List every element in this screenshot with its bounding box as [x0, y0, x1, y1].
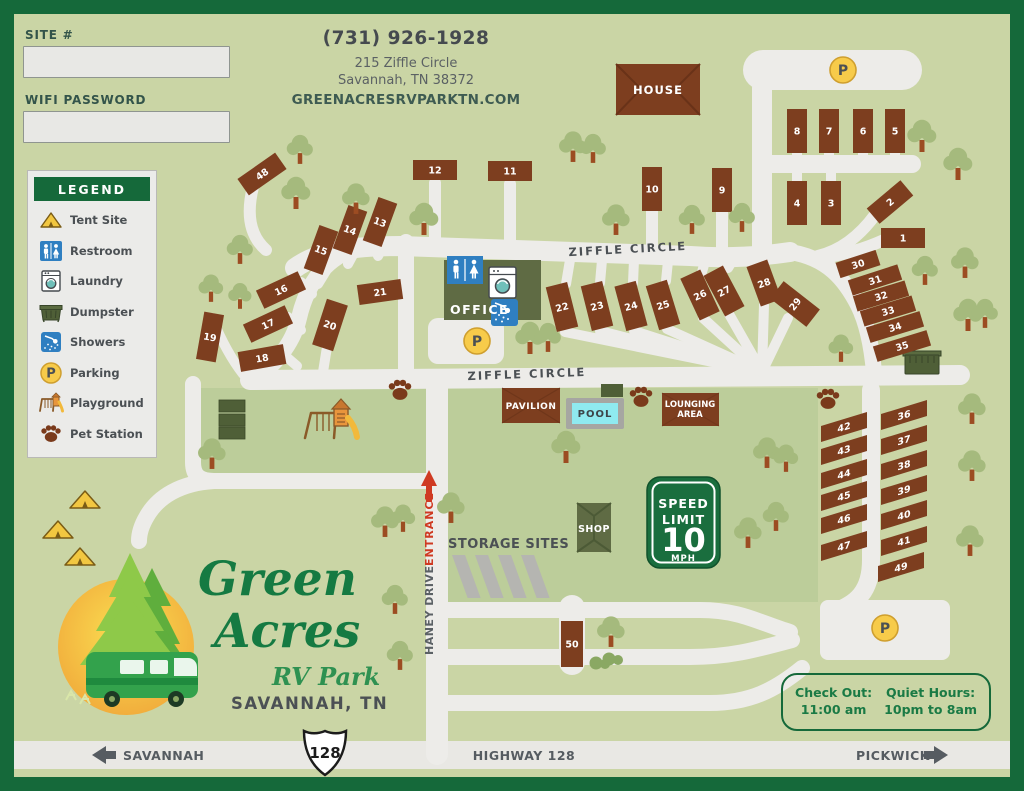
pavilion-label: PAVILION — [506, 402, 557, 412]
logo-location: SAVANNAH, TN — [231, 694, 388, 713]
checkout-info: Check Out: 11:00 am — [795, 685, 872, 719]
wifi-password-input[interactable] — [23, 111, 230, 143]
speed-unit: MPH — [671, 554, 696, 564]
site-5: 5 — [885, 109, 905, 153]
shop: SHOP — [577, 503, 611, 552]
site-11: 11 — [488, 161, 532, 181]
site-10: 10 — [642, 167, 662, 211]
highway-left-city: SAVANNAH — [123, 748, 204, 763]
office-label: OFFICE — [450, 302, 509, 317]
legend-item-showers: Showers — [28, 327, 156, 358]
playground-icon — [37, 391, 64, 415]
house: HOUSE — [616, 64, 700, 115]
svg-text:3: 3 — [828, 199, 835, 210]
legend-panel: LEGEND Tent Site Restroom Laundry Dumpst… — [27, 170, 157, 458]
address-line-1: 215 Ziffle Circle — [276, 56, 536, 73]
address-line-2: Savannah, TN 38372 — [276, 73, 536, 90]
svg-text:18: 18 — [255, 352, 270, 365]
svg-text:6: 6 — [860, 127, 867, 138]
site-50: 50 — [561, 621, 583, 667]
restroom-icon — [447, 256, 483, 284]
legend-item-restroom: Restroom — [28, 236, 156, 267]
speed-limit-sign: SPEED LIMIT 10 MPH — [647, 477, 720, 568]
legend-title: LEGEND — [34, 177, 150, 201]
legend-item-parking: P Parking — [28, 358, 156, 389]
site-number-input[interactable] — [23, 46, 230, 78]
pavilion: PAVILION — [502, 388, 560, 423]
svg-text:10: 10 — [645, 185, 659, 196]
lounging-label-1: LOUNGING — [665, 400, 716, 410]
entrance-label: ENTRANCE — [423, 492, 436, 566]
quiet-hours-value: 10pm to 8am — [884, 702, 977, 719]
legend-item-laundry: Laundry — [28, 266, 156, 297]
dumpster — [903, 351, 941, 374]
site-1: 1 — [881, 228, 925, 248]
legend-item-tent-site: Tent Site — [28, 205, 156, 236]
checkout-label: Check Out: — [795, 685, 872, 702]
highway-right-city: PICKWICK — [856, 748, 931, 763]
svg-text:19: 19 — [202, 331, 217, 344]
storage-sites-label: STORAGE SITES — [448, 537, 569, 552]
site-number-label: SITE # — [25, 28, 74, 42]
logo-word-rv-park: RV Park — [272, 662, 380, 691]
svg-text:1: 1 — [900, 234, 907, 245]
route-shield-number: 128 — [309, 744, 340, 762]
pool-label: POOL — [578, 409, 613, 420]
legend-item-dumpster: Dumpster — [28, 297, 156, 328]
site-9: 9 — [712, 168, 732, 212]
laundry-icon — [489, 267, 516, 298]
svg-text:8: 8 — [794, 127, 801, 138]
phone-number: (731) 926-1928 — [276, 28, 536, 49]
website-url: GREENACRESRVPARKTN.COM — [276, 92, 536, 108]
lounging-area: LOUNGING AREA — [662, 393, 719, 426]
svg-text:21: 21 — [373, 287, 388, 300]
quiet-hours-info: Quiet Hours: 10pm to 8am — [884, 685, 977, 719]
showers-icon — [37, 330, 64, 354]
parking-marker-icon: P — [464, 328, 490, 354]
svg-text:50: 50 — [565, 640, 579, 651]
svg-text:4: 4 — [794, 199, 801, 210]
house-label: HOUSE — [633, 83, 683, 97]
logo-word-acres: Acres — [214, 608, 360, 655]
svg-text:9: 9 — [719, 186, 726, 197]
svg-text:P: P — [472, 334, 482, 350]
lounging-label-2: AREA — [677, 410, 703, 420]
dumpster-icon — [37, 300, 64, 324]
legend-item-playground: Playground — [28, 388, 156, 419]
quiet-hours-label: Quiet Hours: — [884, 685, 977, 702]
svg-text:5: 5 — [892, 127, 899, 138]
legend-item-pet-station: Pet Station — [28, 419, 156, 450]
svg-text:P: P — [838, 63, 848, 79]
site-4: 4 — [787, 181, 807, 225]
restroom-icon — [37, 239, 64, 263]
parking-icon: P — [37, 361, 64, 385]
svg-text:P: P — [46, 366, 56, 381]
highway-center-label: HIGHWAY 128 — [473, 748, 576, 763]
parking-marker-icon: P — [872, 615, 898, 641]
wifi-password-label: WIFI PASSWORD — [25, 93, 146, 107]
haney-drive-label: HANEY DRIVE — [423, 566, 436, 655]
laundry-icon — [37, 269, 64, 293]
site-3: 3 — [821, 181, 841, 225]
parking-marker-icon: P — [830, 57, 856, 83]
shop-label: SHOP — [578, 524, 610, 535]
svg-text:P: P — [880, 621, 890, 637]
contact-block: (731) 926-1928 215 Ziffle Circle Savanna… — [276, 28, 536, 108]
office: OFFICE — [444, 256, 541, 326]
speed-line1: SPEED — [658, 496, 709, 511]
park-map-page: HOUSE — [0, 0, 1024, 791]
info-box: Check Out: 11:00 am Quiet Hours: 10pm to… — [781, 673, 991, 731]
site-12: 12 — [413, 160, 457, 180]
tent-icon — [37, 208, 64, 232]
svg-text:12: 12 — [428, 166, 441, 177]
pool-shed — [601, 384, 623, 397]
site-8: 8 — [787, 109, 807, 153]
svg-text:7: 7 — [826, 127, 833, 138]
pet-station-icon — [37, 422, 64, 446]
logo-word-green: Green — [198, 556, 357, 603]
site-7: 7 — [819, 109, 839, 153]
checkout-time: 11:00 am — [795, 702, 872, 719]
site-6: 6 — [853, 109, 873, 153]
svg-text:11: 11 — [503, 167, 516, 178]
storage-boxes — [219, 400, 245, 439]
